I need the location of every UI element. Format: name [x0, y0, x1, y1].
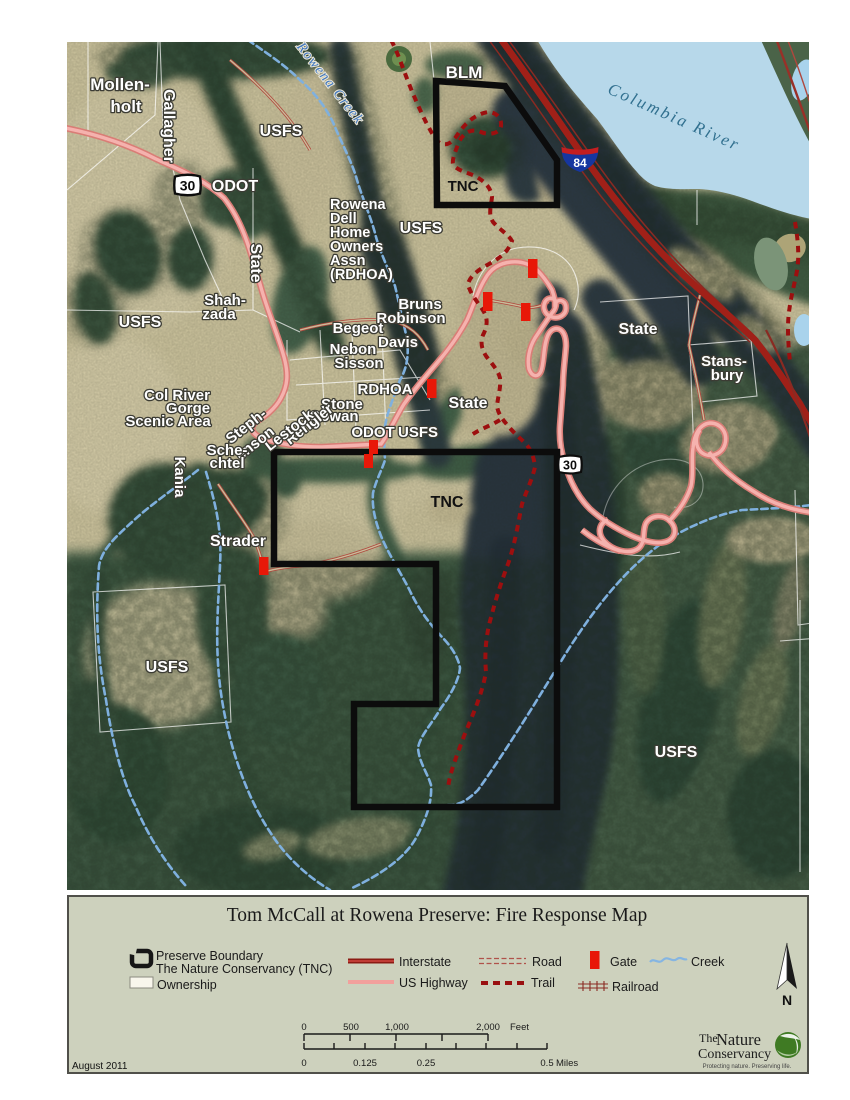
- svg-text:Railroad: Railroad: [612, 980, 659, 994]
- svg-text:The Nature Conservancy (TNC): The Nature Conservancy (TNC): [156, 962, 332, 976]
- svg-text:chtel: chtel: [209, 455, 244, 472]
- svg-text:USFS: USFS: [119, 314, 162, 331]
- svg-text:RDHOA: RDHOA: [358, 381, 413, 398]
- svg-text:Trail: Trail: [531, 976, 555, 990]
- svg-text:Feet: Feet: [510, 1022, 529, 1033]
- svg-text:Davis: Davis: [378, 334, 418, 351]
- svg-text:TNC: TNC: [448, 178, 479, 195]
- svg-text:bury: bury: [711, 367, 744, 384]
- svg-text:Miles: Miles: [556, 1058, 578, 1069]
- svg-text:Interstate: Interstate: [399, 955, 451, 969]
- svg-text:Robinson: Robinson: [376, 310, 445, 327]
- svg-text:BLM: BLM: [446, 63, 483, 82]
- svg-text:Begeot: Begeot: [333, 320, 384, 337]
- svg-text:USFS: USFS: [398, 424, 438, 441]
- svg-text:ODOT: ODOT: [212, 178, 258, 195]
- svg-text:0.125: 0.125: [353, 1058, 377, 1069]
- svg-text:USFS: USFS: [655, 744, 698, 761]
- svg-text:Kania: Kania: [171, 457, 188, 499]
- svg-text:Protecting nature. Preserving: Protecting nature. Preserving life.: [703, 1064, 792, 1070]
- svg-text:Ownership: Ownership: [157, 978, 217, 992]
- svg-text:0.25: 0.25: [417, 1058, 436, 1069]
- svg-text:30: 30: [180, 178, 196, 194]
- svg-text:zada: zada: [202, 306, 236, 323]
- svg-text:USFS: USFS: [260, 123, 303, 140]
- svg-text:0.5: 0.5: [540, 1058, 553, 1069]
- svg-text:State: State: [448, 395, 487, 412]
- svg-text:TNC: TNC: [431, 494, 464, 511]
- svg-text:0: 0: [301, 1058, 306, 1069]
- svg-text:USFS: USFS: [400, 220, 443, 237]
- svg-text:500: 500: [343, 1022, 359, 1033]
- svg-text:State: State: [247, 243, 264, 282]
- svg-text:Strader: Strader: [210, 533, 266, 550]
- svg-text:(RDHOA): (RDHOA): [330, 267, 393, 283]
- svg-text:Scenic Area: Scenic Area: [125, 413, 211, 430]
- svg-text:Gallagher: Gallagher: [160, 89, 177, 163]
- svg-text:1,000: 1,000: [385, 1022, 409, 1033]
- svg-text:holt: holt: [110, 97, 141, 116]
- svg-text:0: 0: [301, 1022, 306, 1033]
- svg-text:30: 30: [563, 459, 577, 473]
- svg-text:ODOT: ODOT: [351, 424, 394, 441]
- svg-text:Creek: Creek: [691, 955, 725, 969]
- svg-text:US Highway: US Highway: [399, 976, 469, 990]
- svg-text:August 2011: August 2011: [72, 1061, 128, 1072]
- svg-text:Sisson: Sisson: [334, 355, 383, 372]
- svg-text:Road: Road: [532, 955, 562, 969]
- svg-text:Preserve Boundary: Preserve Boundary: [156, 949, 264, 963]
- svg-text:USFS: USFS: [146, 659, 189, 676]
- svg-text:The: The: [699, 1031, 718, 1045]
- svg-text:Conservancy: Conservancy: [698, 1047, 771, 1062]
- svg-text:Mollen-: Mollen-: [90, 75, 150, 94]
- svg-text:Tom McCall at Rowena Preserve:: Tom McCall at Rowena Preserve: Fire Resp…: [227, 905, 648, 926]
- svg-text:N: N: [782, 992, 792, 1008]
- svg-text:84: 84: [573, 156, 587, 170]
- svg-text:State: State: [618, 321, 657, 338]
- svg-text:2,000: 2,000: [476, 1022, 500, 1033]
- svg-text:Gate: Gate: [610, 955, 637, 969]
